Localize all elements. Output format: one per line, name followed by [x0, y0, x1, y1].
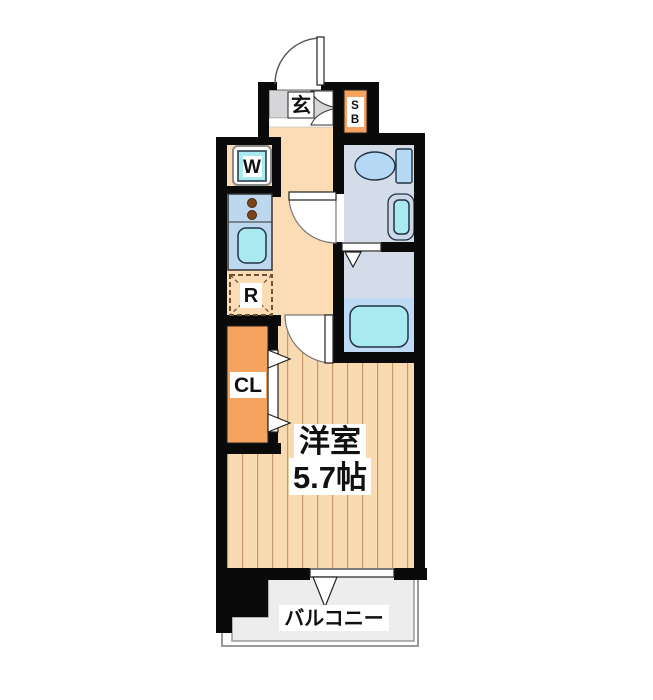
shoe-box-label-s: S: [351, 100, 359, 112]
shoe-box: S B: [344, 90, 367, 133]
room-door-leaf: [325, 315, 333, 363]
washroom-door-leaf: [289, 192, 336, 200]
closet-label: CL: [234, 374, 262, 397]
toilet-room: [344, 145, 414, 242]
toilet-bowl: [355, 152, 395, 180]
wall-bath-bottom: [333, 352, 425, 363]
entrance-door-arc: [275, 38, 321, 84]
entrance-door: [275, 37, 324, 85]
wall-left-outer: [216, 137, 227, 580]
stove-burner-1: [248, 199, 257, 208]
wall-under-washer: [227, 186, 272, 194]
wall-room-bottom-right: [394, 568, 427, 580]
bathtub-basin: [350, 306, 408, 347]
wall-room-bottom-left: [216, 568, 310, 580]
room-label-group: 洋室 5.7帖: [289, 424, 371, 495]
refrigerator-label: R: [244, 285, 259, 307]
stove-burner-2: [248, 211, 257, 220]
washer-label: W: [243, 157, 261, 178]
genkan-label: 玄: [291, 93, 311, 117]
washing-machine-area: W: [233, 146, 271, 185]
wall-washer-top: [216, 137, 281, 145]
vanity-sink-basin: [394, 200, 409, 234]
shoe-box-label-b: B: [351, 114, 359, 126]
balcony-label: バルコニー: [284, 607, 384, 630]
wall-closet-right-upper: [268, 326, 278, 350]
wall-wet-left-lower: [333, 243, 344, 363]
genkan-label-group: 玄: [288, 92, 314, 118]
wall-top-left-stub: [258, 82, 277, 90]
wall-washer-right: [272, 137, 281, 197]
room-size-label: 5.7帖: [293, 460, 367, 495]
balcony-label-group: バルコニー: [279, 605, 389, 631]
wall-balcony-step-2: [216, 617, 232, 633]
wall-room-top: [216, 315, 281, 326]
wall-genkan-left: [258, 82, 269, 137]
balcony-window-bar: [310, 569, 394, 577]
wall-balcony-step-1: [216, 580, 268, 617]
bathroom: [344, 252, 414, 352]
kitchen-counter: [228, 194, 272, 270]
wall-toilet-top: [333, 133, 425, 145]
wall-closet-bottom: [216, 443, 281, 454]
entrance-door-leaf: [317, 37, 324, 85]
wall-bath-divider-right: [381, 242, 425, 252]
toilet-tank: [396, 149, 412, 183]
bath-door-bar: [342, 243, 381, 251]
kitchen-sink: [238, 228, 266, 263]
floor-plan-svg: S B W R CL: [0, 0, 653, 700]
room-name-label: 洋室: [299, 424, 361, 459]
floor-plan: S B W R CL: [0, 0, 653, 700]
